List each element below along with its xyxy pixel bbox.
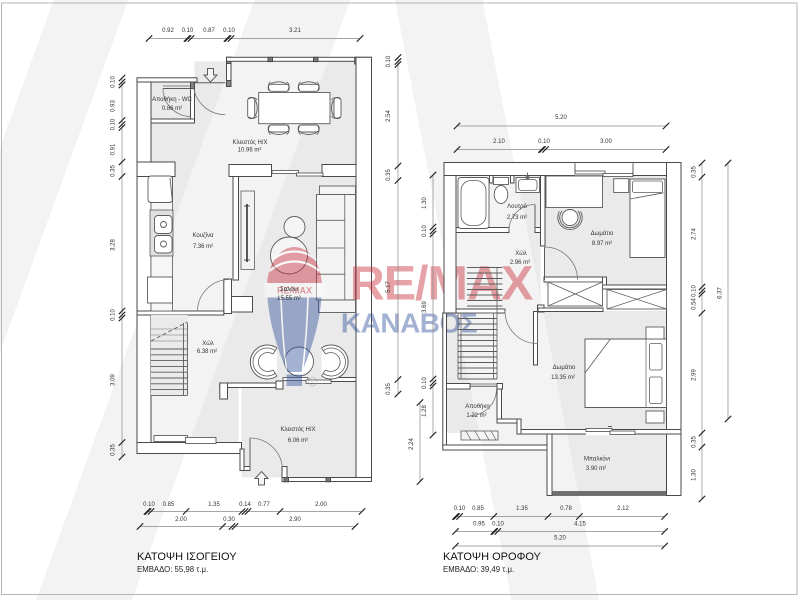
svg-text:0.10: 0.10 bbox=[454, 506, 466, 512]
svg-text:5.20: 5.20 bbox=[555, 115, 567, 121]
svg-text:1.30: 1.30 bbox=[422, 197, 428, 209]
svg-text:Λουτρό: Λουτρό bbox=[507, 203, 527, 210]
svg-text:3.28: 3.28 bbox=[111, 239, 117, 251]
svg-text:3.90 m²: 3.90 m² bbox=[586, 466, 606, 472]
svg-text:Σαλόνι: Σαλόνι bbox=[280, 286, 298, 293]
svg-text:2.96 m²: 2.96 m² bbox=[510, 260, 530, 266]
svg-text:0.35: 0.35 bbox=[692, 436, 698, 448]
svg-text:2.90: 2.90 bbox=[289, 517, 301, 523]
svg-text:6.06 m²: 6.06 m² bbox=[288, 438, 308, 444]
svg-text:0.10: 0.10 bbox=[692, 285, 698, 297]
svg-text:0.35: 0.35 bbox=[692, 166, 698, 178]
svg-text:2.54: 2.54 bbox=[386, 110, 392, 122]
svg-text:ΕΜΒΑΔΟ: 39,49 τ.μ.: ΕΜΒΑΔΟ: 39,49 τ.μ. bbox=[443, 565, 514, 574]
svg-text:1.35: 1.35 bbox=[516, 506, 528, 512]
svg-text:3.69: 3.69 bbox=[422, 301, 428, 313]
svg-text:2.10: 2.10 bbox=[493, 139, 505, 145]
svg-text:1.35: 1.35 bbox=[208, 502, 220, 508]
svg-text:0.10: 0.10 bbox=[111, 76, 117, 88]
svg-text:2.73 m²: 2.73 m² bbox=[507, 215, 527, 221]
svg-text:0.10: 0.10 bbox=[422, 377, 428, 389]
svg-text:0.30: 0.30 bbox=[223, 517, 235, 523]
svg-text:1.30: 1.30 bbox=[692, 469, 698, 481]
svg-text:R: R bbox=[311, 380, 315, 386]
svg-text:0.87: 0.87 bbox=[203, 28, 215, 34]
svg-text:ΚΑΤΟΨΗ ΟΡΟΦΟΥ: ΚΑΤΟΨΗ ΟΡΟΦΟΥ bbox=[443, 551, 542, 563]
svg-text:RE/MAX: RE/MAX bbox=[350, 257, 533, 311]
svg-text:3.09: 3.09 bbox=[111, 374, 117, 386]
svg-text:0.95: 0.95 bbox=[473, 522, 485, 528]
svg-text:0.35: 0.35 bbox=[386, 169, 392, 181]
svg-text:2.99: 2.99 bbox=[692, 369, 698, 381]
svg-text:0.10: 0.10 bbox=[143, 502, 155, 508]
svg-text:0.86 m²: 0.86 m² bbox=[162, 106, 182, 112]
svg-text:0.10: 0.10 bbox=[492, 522, 504, 528]
svg-text:0.92: 0.92 bbox=[162, 28, 174, 34]
svg-text:ΕΜΒΑΔΟ: 55,98 τ.μ.: ΕΜΒΑΔΟ: 55,98 τ.μ. bbox=[137, 565, 208, 574]
svg-text:Κουζίνα: Κουζίνα bbox=[193, 233, 215, 239]
svg-text:Κλειστός Η/Χ: Κλειστός Η/Χ bbox=[233, 139, 268, 146]
svg-text:Αποθήκη - WC: Αποθήκη - WC bbox=[152, 96, 192, 103]
svg-text:0.10: 0.10 bbox=[422, 225, 428, 237]
svg-text:0.78: 0.78 bbox=[560, 506, 572, 512]
svg-text:0.10: 0.10 bbox=[223, 28, 235, 34]
svg-text:0.35: 0.35 bbox=[111, 165, 117, 177]
svg-text:Χώλ: Χώλ bbox=[202, 341, 214, 347]
svg-text:5.17: 5.17 bbox=[386, 281, 392, 293]
svg-text:3.00: 3.00 bbox=[600, 139, 612, 145]
svg-text:0.10: 0.10 bbox=[111, 309, 117, 321]
svg-text:3.21: 3.21 bbox=[289, 28, 301, 34]
svg-text:5.20: 5.20 bbox=[554, 536, 566, 542]
svg-text:0.10: 0.10 bbox=[111, 118, 117, 130]
svg-text:2.12: 2.12 bbox=[617, 506, 629, 512]
svg-text:2.24: 2.24 bbox=[409, 438, 415, 450]
svg-text:Κλειστός Η/Χ: Κλειστός Η/Χ bbox=[281, 426, 316, 433]
svg-text:0.93: 0.93 bbox=[111, 100, 117, 112]
svg-text:10.96 m²: 10.96 m² bbox=[238, 148, 262, 154]
svg-text:0.91: 0.91 bbox=[111, 143, 117, 155]
svg-text:6.38 m²: 6.38 m² bbox=[197, 349, 217, 355]
svg-text:Δωμάτιο: Δωμάτιο bbox=[591, 230, 614, 237]
svg-text:8.97 m²: 8.97 m² bbox=[592, 241, 612, 247]
svg-text:15.55 m²: 15.55 m² bbox=[277, 296, 301, 302]
svg-text:7.36 m²: 7.36 m² bbox=[193, 244, 213, 250]
svg-text:13.35 m²: 13.35 m² bbox=[551, 375, 575, 381]
svg-text:0.10: 0.10 bbox=[182, 28, 194, 34]
svg-text:0.85: 0.85 bbox=[472, 506, 484, 512]
svg-text:0.54: 0.54 bbox=[692, 298, 698, 310]
svg-text:Χώλ: Χώλ bbox=[515, 251, 527, 257]
svg-text:2.74: 2.74 bbox=[692, 228, 698, 240]
svg-text:Δωμάτιο: Δωμάτιο bbox=[553, 364, 576, 371]
svg-text:0.85: 0.85 bbox=[163, 502, 175, 508]
svg-text:0.10: 0.10 bbox=[386, 55, 392, 67]
svg-text:1.22 m²: 1.22 m² bbox=[466, 413, 486, 419]
svg-text:0.35: 0.35 bbox=[111, 444, 117, 456]
svg-text:0.14: 0.14 bbox=[239, 502, 251, 508]
svg-text:0.10: 0.10 bbox=[538, 139, 550, 145]
svg-text:2.00: 2.00 bbox=[315, 502, 327, 508]
svg-text:Αποθήκη: Αποθήκη bbox=[465, 403, 489, 410]
svg-text:0.77: 0.77 bbox=[258, 502, 270, 508]
svg-text:ΚΑΤΟΨΗ ΙΣΟΓΕΙΟΥ: ΚΑΤΟΨΗ ΙΣΟΓΕΙΟΥ bbox=[137, 551, 237, 563]
svg-text:0.35: 0.35 bbox=[386, 383, 392, 395]
svg-text:6.37: 6.37 bbox=[718, 287, 724, 299]
svg-text:Μπαλκόνι: Μπαλκόνι bbox=[584, 456, 611, 463]
svg-text:2.00: 2.00 bbox=[175, 517, 187, 523]
svg-text:1.28: 1.28 bbox=[422, 405, 428, 417]
svg-text:4.15: 4.15 bbox=[574, 522, 586, 528]
